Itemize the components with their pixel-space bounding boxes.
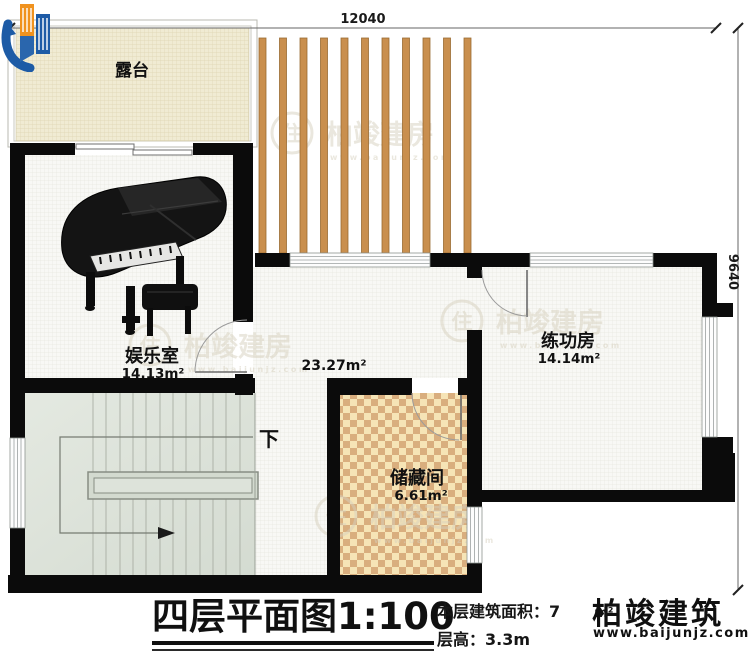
- floor-area-label: 本层建筑面积：: [437, 602, 549, 621]
- svg-text:柏竣建房: 柏竣建房: [184, 331, 292, 363]
- hall-area: 23.27m²: [301, 358, 366, 374]
- title-underline-thin: [152, 649, 434, 651]
- practice-area: 14.14m²: [538, 351, 601, 367]
- practice-label: 练功房: [541, 330, 595, 352]
- window-storage-right: [467, 507, 482, 563]
- stairs-down-label: 下: [259, 427, 279, 451]
- window-left-wall: [10, 438, 25, 528]
- company-website: www.baijunjz.com: [593, 626, 750, 641]
- floorplan-drawing: 住 柏竣建房 www.baijunjz.com 住 柏竣建房 www.baiju…: [0, 0, 750, 658]
- window-hall-top: [290, 253, 430, 267]
- dimension-top-label: 12040: [340, 12, 385, 27]
- svg-text:柏竣建房: 柏竣建房: [370, 502, 478, 534]
- storage-label: 储藏间: [389, 467, 444, 489]
- company-logo-icon: [0, 0, 64, 72]
- floor-area-line: 本层建筑面积：7m²: [437, 598, 579, 622]
- window-practice-right: [702, 317, 717, 437]
- terrace-label: 露台: [115, 60, 149, 81]
- practice-floor: [467, 267, 702, 490]
- page-title: 四层平面图1:100: [152, 586, 455, 640]
- title-underline: [152, 641, 434, 645]
- entertainment-area: 14.13m²: [122, 366, 185, 382]
- entertainment-label: 娱乐室: [125, 345, 179, 367]
- dimension-right-label: 9640: [725, 254, 740, 290]
- floor-area-value: 7: [549, 602, 560, 621]
- window-practice-top: [530, 253, 653, 267]
- floor-height-line: 层高：3.3m: [437, 626, 530, 650]
- floorplan-screenshot: 住 柏竣建房 www.baijunjz.com 住 柏竣建房 www.baiju…: [0, 0, 750, 658]
- storage-area: 6.61m²: [394, 488, 447, 504]
- stair-railing-inner: [94, 478, 252, 493]
